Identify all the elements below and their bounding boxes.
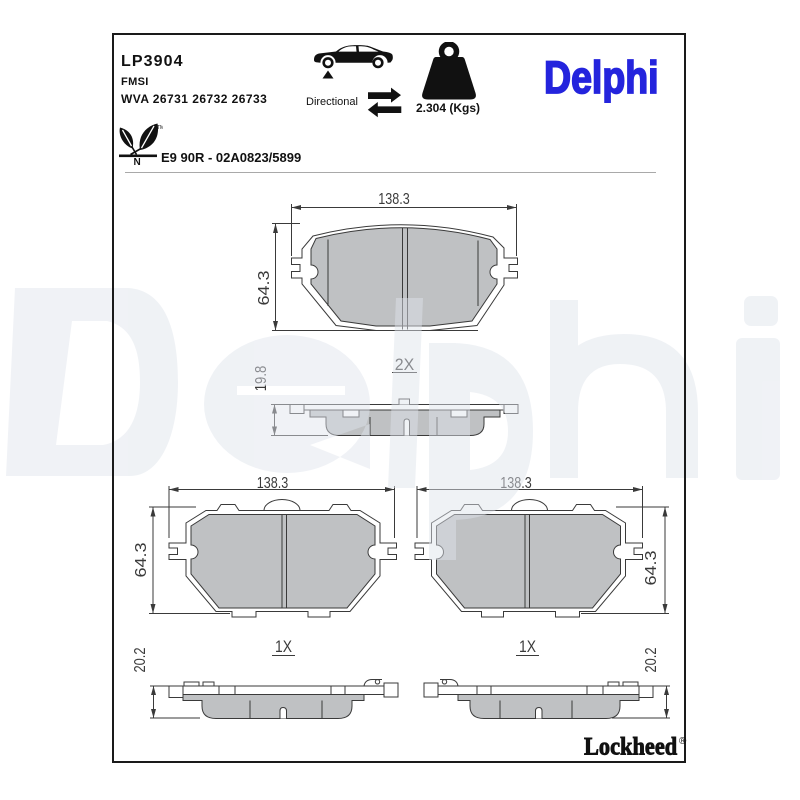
svg-text:N: N — [134, 157, 141, 166]
svg-text:®: ® — [679, 736, 687, 747]
svg-text:Delphi: Delphi — [544, 55, 659, 103]
svg-text:Lockheed: Lockheed — [584, 733, 677, 759]
svg-text:TM: TM — [157, 125, 163, 131]
